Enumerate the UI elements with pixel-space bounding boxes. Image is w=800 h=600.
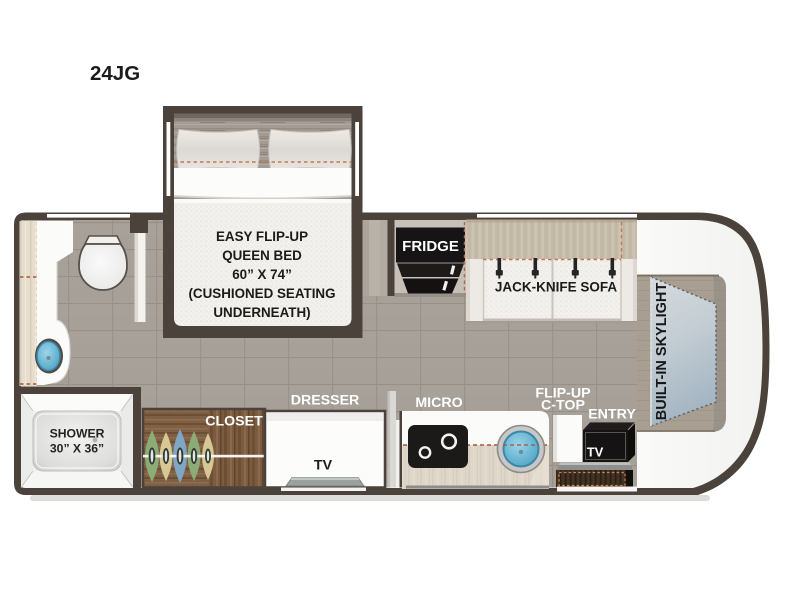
svg-text:BUILT-IN SKYLIGHT: BUILT-IN SKYLIGHT [654,283,670,421]
svg-text:30” X 36”: 30” X 36” [50,442,104,456]
svg-text:60” X 74”: 60” X 74” [232,267,292,282]
svg-text:SHOWER: SHOWER [50,427,105,441]
svg-text:JACK-KNIFE SOFA: JACK-KNIFE SOFA [495,280,618,295]
svg-text:TV: TV [314,458,333,474]
svg-text:C-TOP: C-TOP [541,398,585,414]
svg-text:24JG: 24JG [90,62,140,85]
svg-text:EASY FLIP-UP: EASY FLIP-UP [216,229,308,244]
svg-text:TV: TV [587,445,604,460]
svg-text:MICRO: MICRO [415,395,462,411]
svg-text:CLOSET: CLOSET [205,414,263,430]
svg-text:(CUSHIONED SEATING: (CUSHIONED SEATING [188,286,335,301]
svg-text:DRESSER: DRESSER [291,393,360,409]
svg-text:UNDERNEATH): UNDERNEATH) [213,305,310,320]
svg-text:ENTRY: ENTRY [588,407,636,423]
svg-text:QUEEN BED: QUEEN BED [222,248,302,263]
svg-text:FRIDGE: FRIDGE [402,238,459,255]
